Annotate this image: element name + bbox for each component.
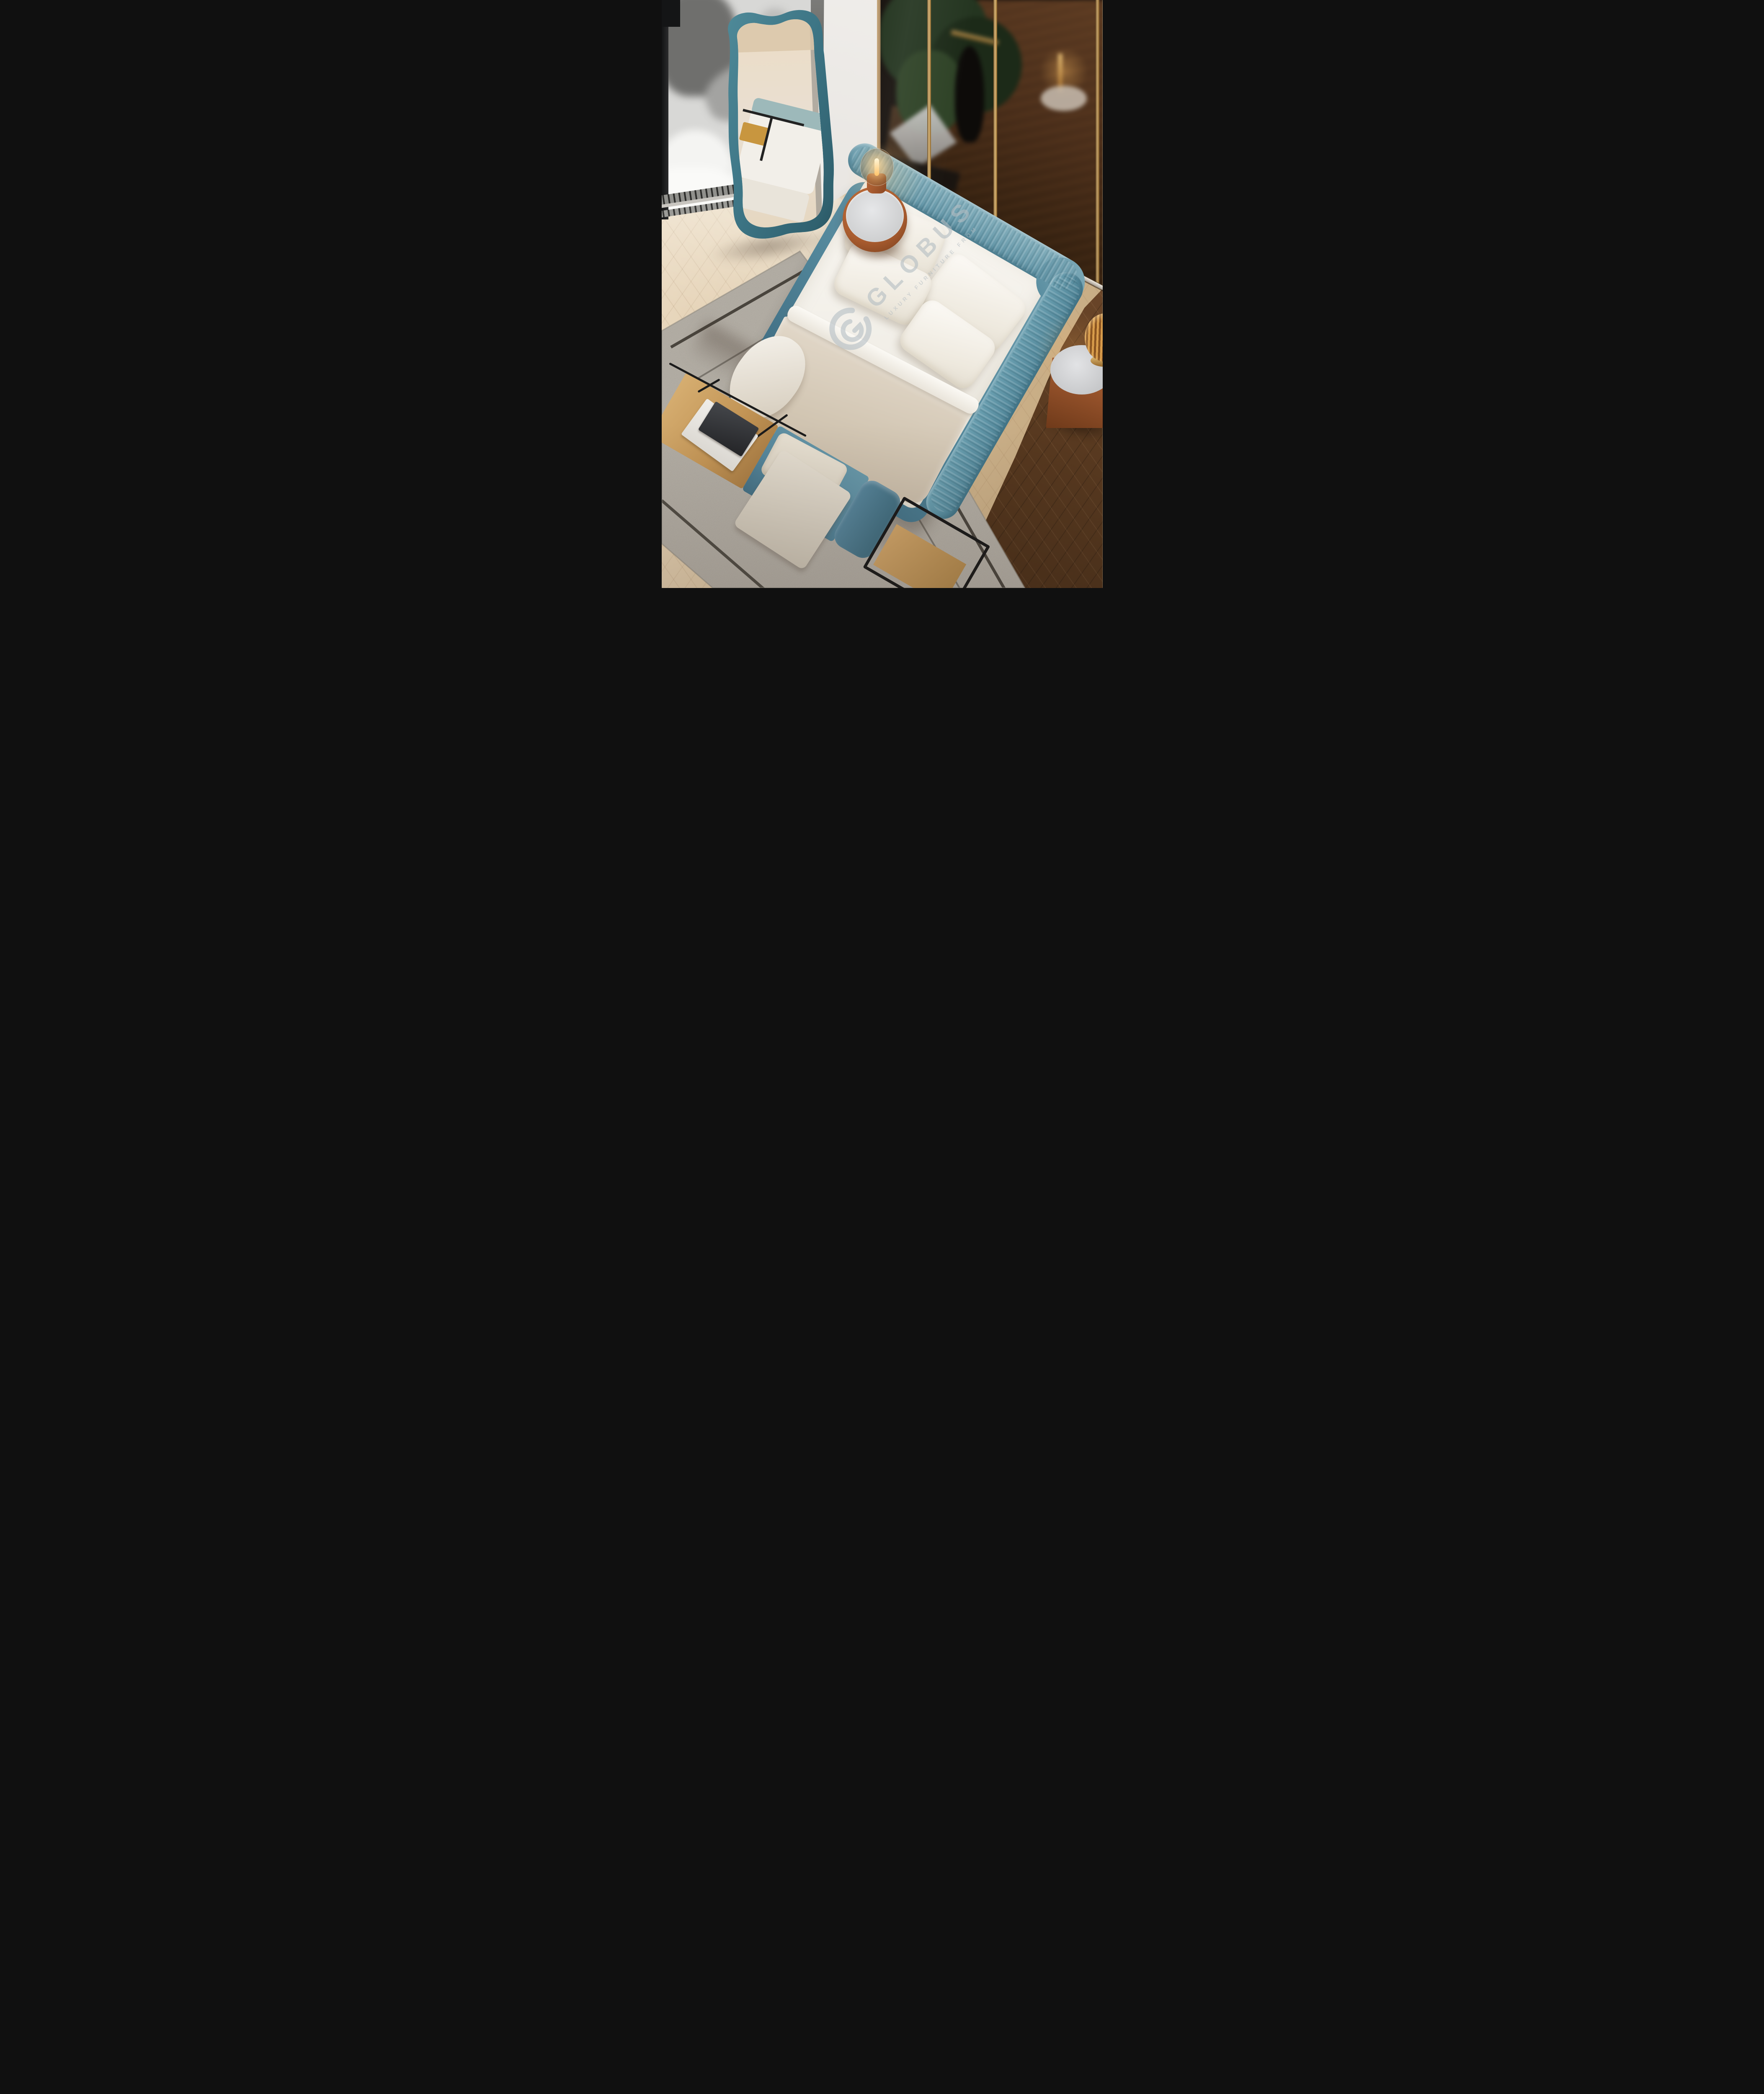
vignette-radial xyxy=(662,0,1103,588)
bedroom-scene: GLOBUS LUXURY FURNITURE FROM xyxy=(662,0,1103,588)
